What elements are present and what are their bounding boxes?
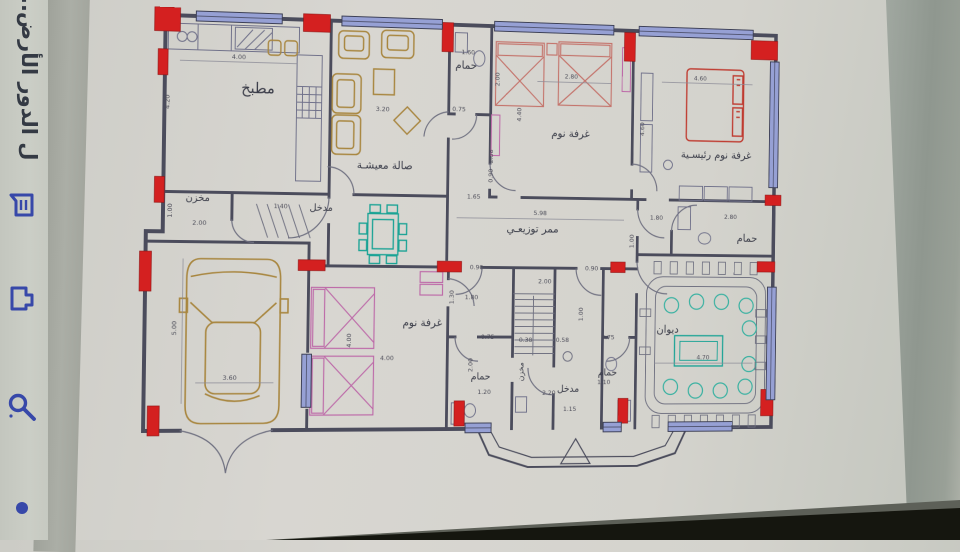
dimension-label: 0.90 — [585, 265, 598, 273]
dimension-label: 3.60 — [223, 374, 237, 382]
column-marker — [618, 398, 628, 423]
walls — [143, 14, 776, 431]
staircase — [512, 294, 573, 361]
dimension-label: 2.00 — [494, 72, 502, 86]
dimension-label: 1.60 — [461, 48, 475, 56]
dimension-label: 0.38 — [519, 336, 532, 344]
room-label-bath-3: حمام — [471, 372, 491, 383]
room-label-bedroom-1: غرفة نوم — [551, 127, 590, 140]
porch — [477, 428, 687, 468]
column-marker — [154, 176, 164, 202]
dimension-label: 2.00 — [538, 278, 551, 286]
floor-plan-image[interactable]: مطبخصالة معيشـةحمامغرفة نومغرفة نوم رئيس… — [134, 6, 793, 484]
room-label-corridor: ممر توزيعـي — [506, 222, 558, 235]
dimension-label: 1.15 — [563, 405, 576, 413]
room-label-living: صالة معيشـة — [357, 158, 413, 172]
room-label-bath-4: حمام — [598, 368, 617, 379]
room-label-entry-1: مدخل — [309, 203, 333, 214]
column-marker — [757, 262, 775, 273]
bedroom1-beds — [495, 40, 611, 109]
room-label-bedroom-2: غرفة نوم — [402, 316, 442, 329]
dimension-label: 1.80 — [650, 214, 663, 222]
room-label-kitchen: مطبخ — [241, 79, 275, 98]
dimension-label: 2.00 — [192, 219, 206, 227]
dimension-label: 4.00 — [232, 53, 246, 61]
dimension-label: 2.80 — [565, 73, 578, 81]
room-label-store-1: مخزن — [186, 193, 210, 204]
desk-background — [870, 0, 960, 540]
column-marker — [624, 33, 635, 62]
column-marker — [454, 401, 465, 426]
bedroom2-beds — [310, 271, 443, 416]
dimension-label: 0.90 — [487, 169, 495, 183]
bedroom1-wardrobes — [491, 43, 631, 158]
column-marker — [442, 22, 454, 51]
dimension-label: 0.90 — [470, 263, 484, 271]
dimension-label: 0.75 — [601, 333, 614, 341]
dimension-label: 4.60 — [639, 122, 646, 136]
column-marker — [158, 49, 168, 75]
room-label-bath-right: حمام — [737, 232, 758, 245]
dimension-label: 4.20 — [163, 94, 171, 109]
dimension-label: 1.30 — [448, 290, 456, 304]
column-marker — [298, 260, 325, 271]
dimension-label: 2.38 — [487, 149, 495, 163]
car — [178, 258, 289, 423]
dining-set — [359, 205, 407, 264]
dot-indicator — [6, 492, 38, 524]
screen-bezel — [0, 500, 960, 540]
search-icon[interactable] — [6, 392, 38, 424]
column-marker — [303, 14, 330, 33]
room-label-entry-2: مدخل — [557, 384, 579, 395]
dimension-label: 1.10 — [597, 378, 610, 386]
column-marker — [611, 262, 626, 273]
dimension-label: 0.75 — [481, 333, 495, 341]
dimension-label: 4.40 — [516, 108, 524, 122]
viewer-toolbar: ل الدور الأرض... — [0, 0, 48, 540]
living-furniture — [332, 28, 422, 155]
dimension-label: 3.20 — [376, 105, 390, 113]
dimension-label: 0.75 — [452, 105, 466, 113]
dimension-label: 2.00 — [467, 358, 475, 372]
plan-labels: مطبخصالة معيشـةحمامغرفة نومغرفة نوم رئيس… — [159, 39, 759, 415]
dimension-label: 1.80 — [465, 293, 479, 301]
dimension-label: 4.60 — [694, 75, 707, 83]
document-title: ل الدور الأرض... — [17, 0, 41, 160]
dimension-label: 4.70 — [696, 354, 709, 362]
photo-of-screen: { "viewer": { "title_vertical": "ل الدور… — [0, 0, 960, 540]
master-bed — [640, 67, 754, 201]
dimension-label: 0.58 — [556, 336, 569, 344]
column-marker — [155, 7, 181, 32]
dimension-label: 4.00 — [345, 333, 353, 347]
dimension-label: 5.00 — [170, 321, 178, 335]
room-label-diwan: ديوان — [656, 323, 678, 335]
dimension-label: 2.20 — [542, 389, 555, 397]
column-marker — [751, 41, 778, 61]
dimension-label: 4.00 — [380, 354, 394, 362]
column-marker — [765, 195, 781, 206]
dimension-label: 1.00 — [166, 203, 174, 218]
dimension-label: 2.80 — [724, 213, 737, 221]
dimension-label: 1.00 — [577, 307, 584, 321]
column-marker — [437, 261, 461, 272]
column-marker — [147, 406, 159, 436]
room-label-store-2: مخزن — [517, 362, 526, 381]
room-label-master-bedroom: غرفة نوم رئيسـية — [681, 148, 752, 162]
share-icon[interactable] — [6, 282, 38, 314]
column-marker — [139, 251, 151, 291]
annotation-icon[interactable] — [6, 190, 38, 222]
dimension-label: 1.00 — [628, 234, 635, 248]
dimension-label: 1.65 — [467, 193, 481, 201]
kitchen-counter — [166, 23, 322, 181]
dimension-label: 5.98 — [534, 209, 547, 217]
diwan-seating — [638, 261, 767, 427]
room-label-bath-top: حمام — [455, 59, 477, 72]
dimension-label: 1.20 — [477, 388, 491, 396]
dimension-label: 1.40 — [274, 202, 288, 210]
